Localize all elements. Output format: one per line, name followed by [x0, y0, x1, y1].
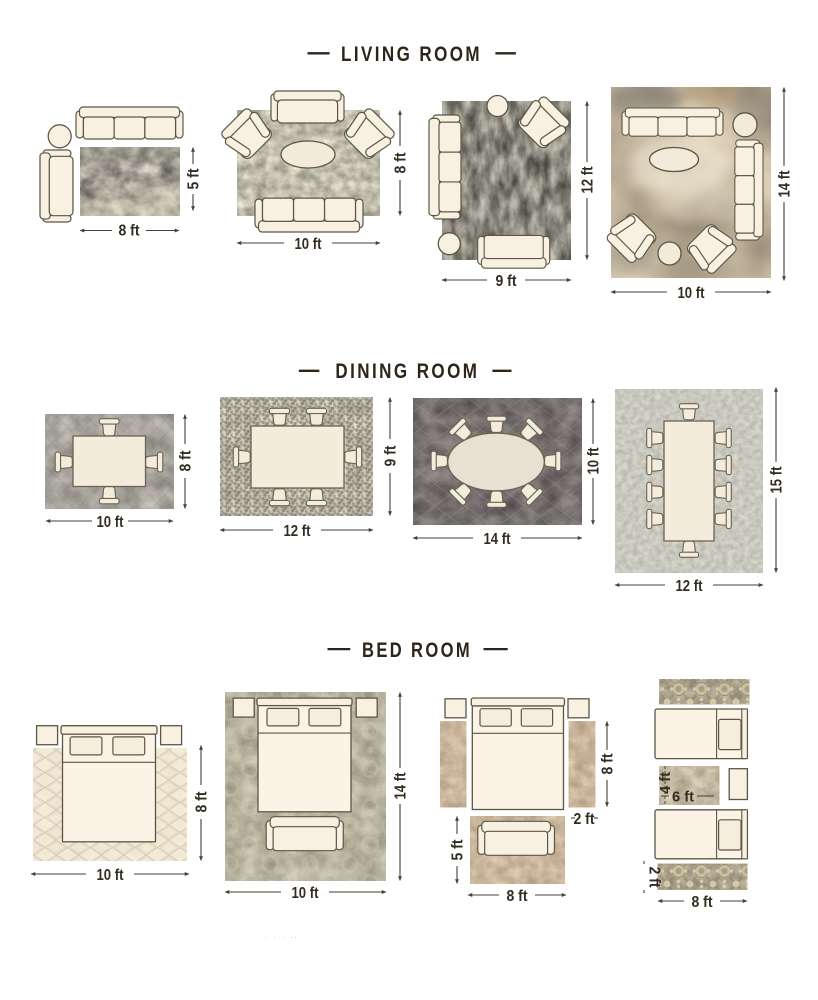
svg-text:15 ft: 15 ft: [769, 467, 786, 494]
svg-text:10 ft: 10 ft: [97, 867, 124, 884]
svg-text:8 ft: 8 ft: [600, 754, 617, 775]
svg-text:6 ft: 6 ft: [672, 789, 694, 806]
svg-text:9 ft: 9 ft: [496, 273, 517, 290]
svg-text:8 ft: 8 ft: [393, 153, 410, 174]
svg-text:8 ft: 8 ft: [178, 451, 195, 472]
svg-text:8 ft: 8 ft: [507, 888, 528, 905]
svg-text:10 ft: 10 ft: [586, 448, 603, 475]
svg-text:10 ft: 10 ft: [295, 236, 322, 253]
svg-text:10 ft: 10 ft: [292, 885, 319, 902]
svg-text:8 ft: 8 ft: [119, 223, 140, 240]
svg-text:12 ft: 12 ft: [284, 523, 311, 540]
svg-text:12 ft: 12 ft: [580, 167, 597, 194]
svg-text:5 ft: 5 ft: [186, 169, 203, 190]
svg-text:9 ft: 9 ft: [383, 446, 400, 467]
svg-text:14 ft: 14 ft: [777, 171, 794, 198]
svg-text:2 ft: 2 ft: [574, 811, 595, 828]
svg-text:5 ft: 5 ft: [450, 840, 467, 861]
svg-text:BED ROOM: BED ROOM: [362, 639, 472, 662]
svg-text:8 ft: 8 ft: [194, 792, 211, 813]
svg-text:8 ft: 8 ft: [692, 894, 713, 911]
svg-text:10 ft: 10 ft: [97, 514, 124, 531]
svg-text:14 ft: 14 ft: [393, 773, 410, 800]
svg-text:10 ft: 10 ft: [678, 285, 705, 302]
svg-text:LIVING ROOM: LIVING ROOM: [341, 43, 482, 66]
svg-text:14 ft: 14 ft: [484, 531, 511, 548]
svg-text:. . . ..: . . . ..: [265, 931, 299, 940]
svg-text:2 ft: 2 ft: [646, 867, 663, 888]
svg-text:12 ft: 12 ft: [676, 578, 703, 595]
svg-text:DINING ROOM: DINING ROOM: [335, 360, 479, 383]
